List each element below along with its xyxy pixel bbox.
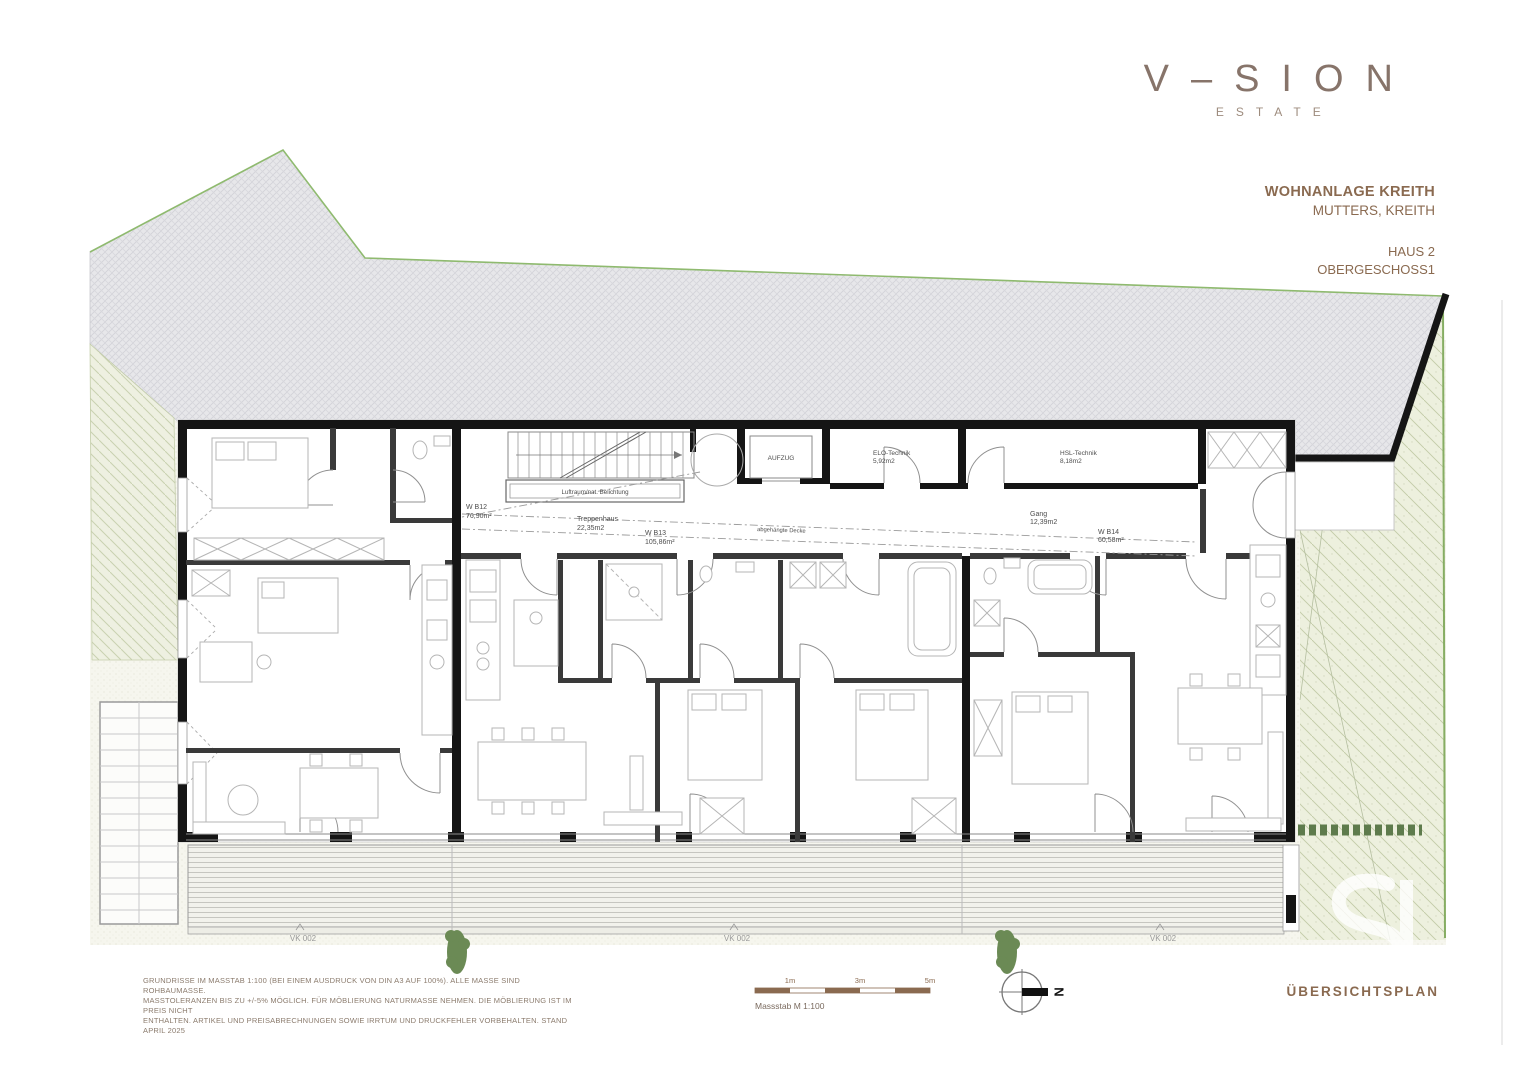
room-label-gang: Gang	[1030, 511, 1047, 518]
skylight-label: Luftraum/nat. Belichtung	[561, 489, 629, 496]
disclaimer-line-3: ENTHALTEN. ARTIKEL UND PREISABRECHNUNGEN…	[143, 1016, 573, 1036]
scale-tick-3m: 3m	[855, 976, 865, 985]
room-label-wb12: W B12	[466, 504, 487, 511]
project-name: WOHNANLAGE KREITH	[1265, 184, 1435, 200]
room-label-hsl: HSL-Technik	[1060, 450, 1098, 457]
building-name: HAUS 2	[1265, 244, 1435, 259]
north-compass: N	[999, 969, 1067, 1015]
room-area-hsl: 8,18m2	[1060, 458, 1082, 465]
room-area-gang: 12,39m2	[1030, 519, 1057, 526]
room-label-elo: ELO-Technik	[873, 450, 911, 457]
terrace-mark-3: VK 002	[1150, 934, 1177, 943]
room-area-wb13: 105,86m²	[645, 539, 675, 546]
site-area-grey	[90, 150, 1443, 457]
entry-walkway	[1294, 462, 1394, 530]
north-label: N	[1052, 987, 1067, 996]
room-area-wb14: 60,58m²	[1098, 537, 1124, 544]
building	[178, 420, 1295, 842]
brand-logo-subtext: ESTATE	[1122, 105, 1415, 119]
room-label-wb14: W B14	[1098, 529, 1119, 536]
side-terrace-grid	[100, 702, 178, 924]
project-location: MUTTERS, KREITH	[1265, 203, 1435, 218]
floor-plan-drawing: W B12 76,90m² Treppenhaus 22,35m2 W B13 …	[0, 0, 1527, 1080]
room-area-elo: 5,92m2	[873, 458, 895, 465]
terrace	[188, 845, 1299, 974]
brand-logo-text: V–SION	[1122, 58, 1415, 101]
floor-name: OBERGESCHOSS1	[1265, 262, 1435, 277]
scale-caption: Massstab M 1:100	[755, 1001, 825, 1011]
scale-tick-5m: 5m	[925, 976, 935, 985]
room-label-wb13: W B13	[645, 530, 666, 537]
terrace-mark-2: VK 002	[724, 934, 751, 943]
north-arrow	[1022, 988, 1048, 996]
disclaimer-line-1: GRUNDRISSE IM MASSTAB 1:100 (BEI EINEM A…	[143, 976, 573, 996]
title-block: WOHNANLAGE KREITH MUTTERS, KREITH HAUS 2…	[1265, 184, 1435, 277]
disclaimer: GRUNDRISSE IM MASSTAB 1:100 (BEI EINEM A…	[143, 976, 573, 1036]
room-area-treppenhaus: 22,35m2	[577, 525, 604, 532]
room-area-wb12: 76,90m²	[466, 513, 492, 520]
plan-type-label: ÜBERSICHTSPLAN	[1286, 984, 1439, 999]
scale-tick-1m: 1m	[785, 976, 795, 985]
room-label-treppenhaus: Treppenhaus	[577, 516, 618, 523]
room-label-aufzug: AUFZUG	[768, 455, 795, 462]
scale-bar: 1m 3m 5m Massstab M 1:100	[755, 976, 935, 1011]
disclaimer-line-2: MASSTOLERANZEN BIS ZU +/-5% MÖGLICH. FÜR…	[143, 996, 573, 1016]
page: W B12 76,90m² Treppenhaus 22,35m2 W B13 …	[0, 0, 1527, 1080]
brand-logo: V–SION ESTATE	[1122, 58, 1415, 119]
terrace-mark-1: VK 002	[290, 934, 317, 943]
